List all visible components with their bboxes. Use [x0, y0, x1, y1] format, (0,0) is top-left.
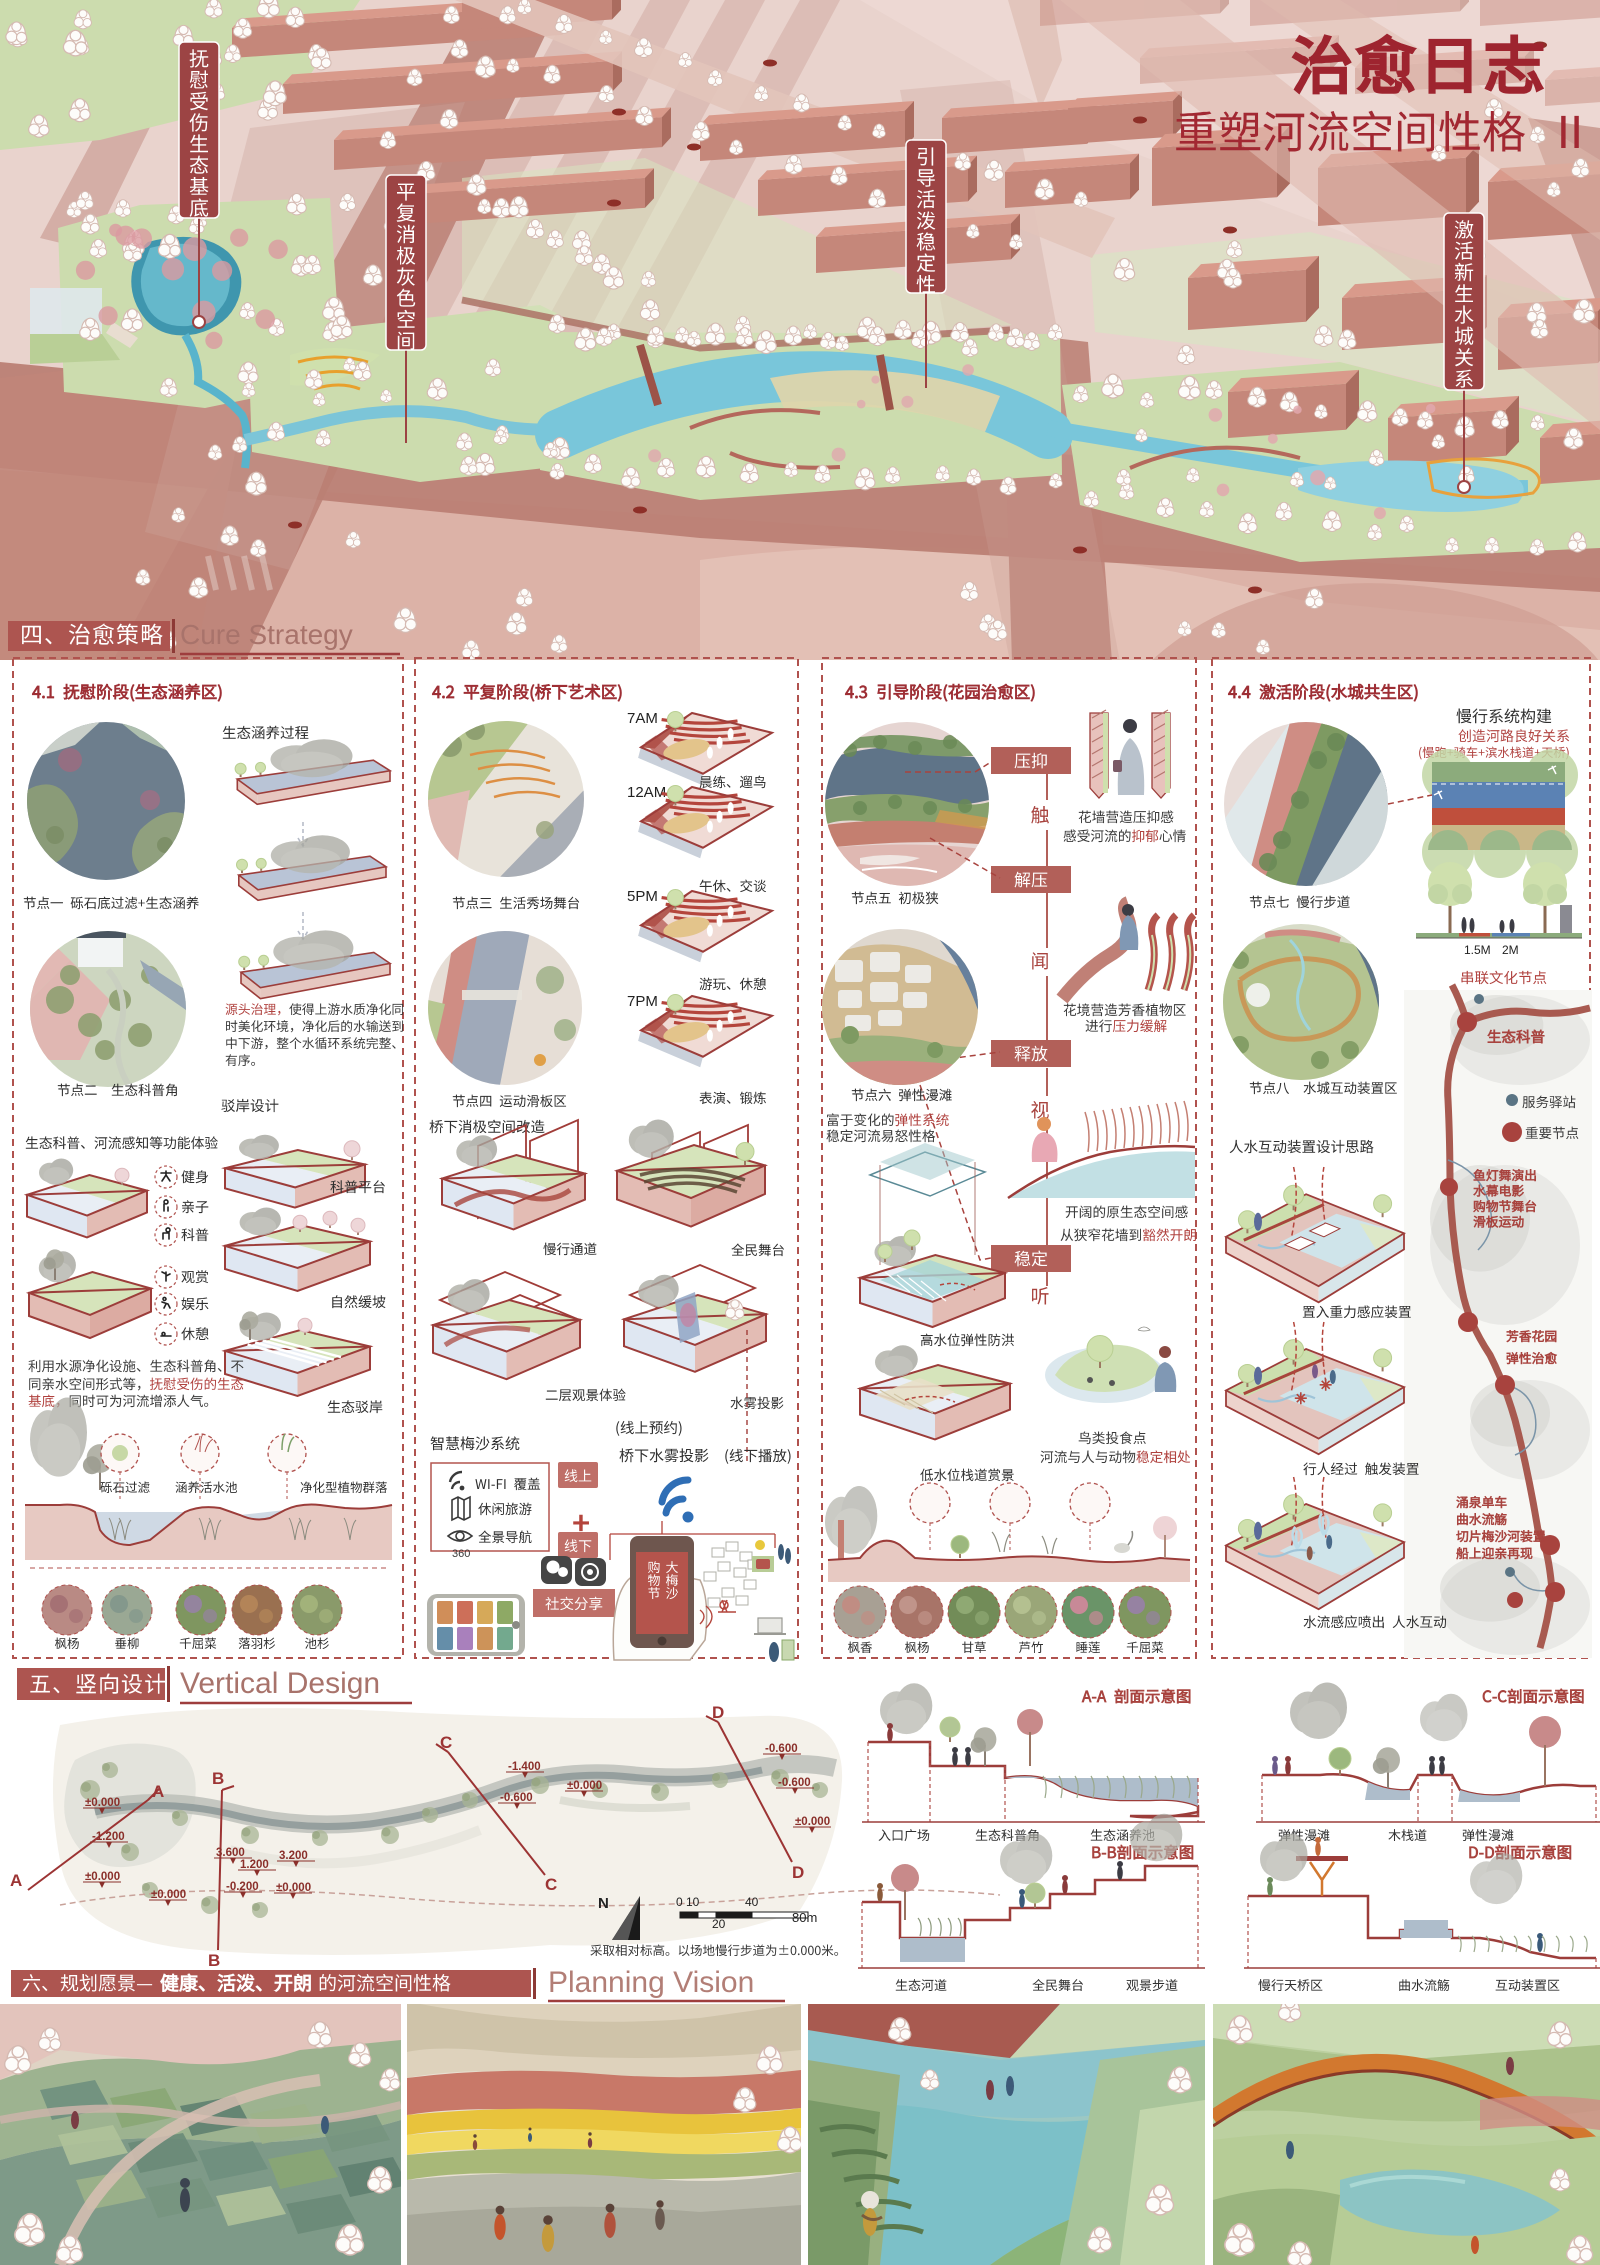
svg-text:±0.000: ±0.000 — [85, 1797, 120, 1809]
svg-text:3.600: 3.600 — [216, 1847, 245, 1859]
svg-text:±0.000: ±0.000 — [151, 1889, 186, 1901]
svg-text:-1.400: -1.400 — [508, 1761, 541, 1773]
svg-text:Cure Strategy: Cure Strategy — [180, 619, 353, 650]
svg-text:-0.600: -0.600 — [778, 1777, 811, 1789]
svg-text:Vertical Design: Vertical Design — [180, 1667, 380, 1700]
svg-text:±0.000: ±0.000 — [276, 1882, 311, 1894]
svg-text:Planning Vision: Planning Vision — [548, 1966, 754, 1999]
svg-text:7PM: 7PM — [627, 993, 658, 1010]
svg-text:D: D — [712, 1703, 724, 1722]
svg-text:20: 20 — [712, 1917, 726, 1931]
svg-text:C: C — [440, 1733, 452, 1752]
svg-text:-1.200: -1.200 — [92, 1831, 125, 1843]
svg-text:3.200: 3.200 — [279, 1850, 308, 1862]
svg-text:360: 360 — [452, 1548, 470, 1560]
svg-text:80m: 80m — [792, 1910, 817, 1925]
svg-text:B: B — [208, 1951, 220, 1970]
svg-text:-0.600: -0.600 — [500, 1792, 533, 1804]
svg-text:1.5M: 1.5M — [1464, 943, 1491, 957]
svg-text:A: A — [152, 1782, 164, 1801]
svg-text:D: D — [792, 1863, 804, 1882]
svg-text:40: 40 — [745, 1895, 759, 1909]
svg-text:-0.200: -0.200 — [226, 1881, 259, 1893]
svg-text:±0.000: ±0.000 — [795, 1816, 830, 1828]
svg-text:-0.600: -0.600 — [765, 1743, 798, 1755]
svg-text:A: A — [10, 1871, 22, 1890]
svg-text:7AM: 7AM — [627, 710, 658, 727]
svg-text:1.200: 1.200 — [240, 1859, 269, 1871]
svg-text:N: N — [598, 1895, 609, 1912]
svg-text:12AM: 12AM — [627, 784, 666, 801]
svg-text:±0.000: ±0.000 — [85, 1871, 120, 1883]
svg-text:5PM: 5PM — [627, 888, 658, 905]
svg-text:C: C — [545, 1875, 557, 1894]
svg-text:2M: 2M — [1502, 943, 1519, 957]
svg-text:0 10: 0 10 — [676, 1895, 700, 1909]
svg-text:±0.000: ±0.000 — [567, 1780, 602, 1792]
svg-text:B: B — [212, 1769, 224, 1788]
